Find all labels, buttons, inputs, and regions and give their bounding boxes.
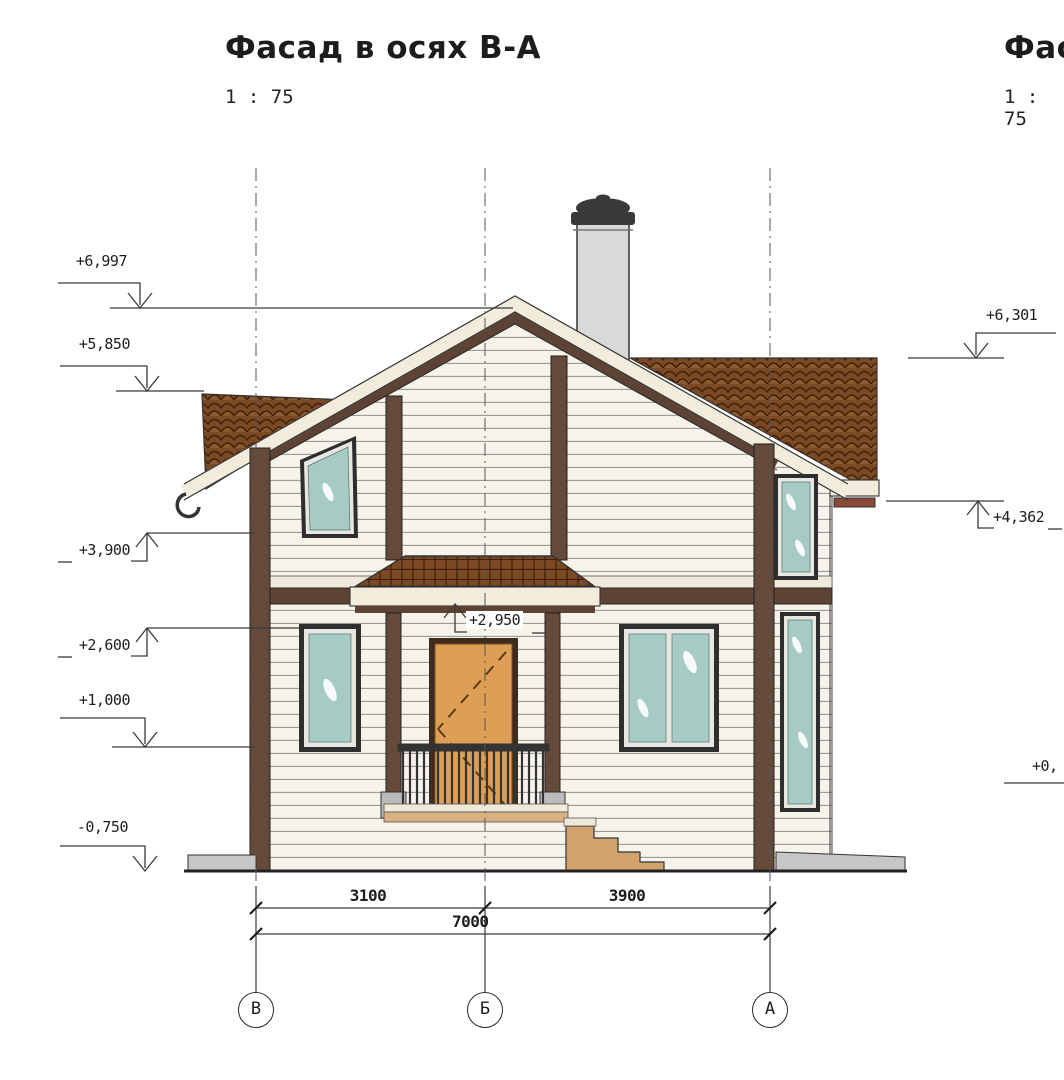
elevation-label-neg0750: -0,750 — [58, 818, 128, 836]
adjacent-view-title: Фас — [1004, 30, 1064, 66]
corner-post-axis-a — [754, 444, 774, 871]
gable-post-left — [386, 396, 402, 560]
facade-elevation-svg — [0, 0, 1064, 1080]
elevation-label-3900: +3,900 — [66, 541, 130, 559]
facade-drawing-sheet: Фасад в осях В-А 1 : 75 Фас 1 : 75 +6,99… — [0, 0, 1064, 1080]
porch-deck — [384, 804, 568, 822]
corner-post-axis-v — [250, 448, 270, 871]
elevation-label-2600: +2,600 — [66, 636, 130, 654]
elevation-label-6997: +6,997 — [57, 252, 127, 270]
elevation-label-canopy-2950: +2,950 — [466, 611, 523, 629]
axis-bubble-v: В — [238, 992, 274, 1028]
axis-bubble-a: А — [752, 992, 788, 1028]
window-ground-left — [299, 624, 361, 752]
main-view-title: Фасад в осях В-А — [225, 30, 541, 66]
axis-bubble-b: Б — [467, 992, 503, 1028]
dimension-total: 7000 — [452, 912, 489, 931]
main-view-scale: 1 : 75 — [225, 86, 294, 108]
gable-post-right — [551, 356, 567, 560]
window-ground-right-double — [619, 624, 719, 752]
plinth-left — [188, 855, 256, 871]
window-wing-lower — [780, 612, 820, 812]
window-wing-upper — [774, 474, 818, 580]
dimension-span-v-b: 3100 — [338, 886, 398, 905]
right-gutter — [834, 498, 875, 507]
dimension-span-b-a: 3900 — [597, 886, 657, 905]
adjacent-view-scale: 1 : 75 — [1004, 86, 1064, 130]
pavement-right — [776, 852, 905, 871]
elevation-label-1000: +1,000 — [60, 691, 130, 709]
elevation-label-4362: +4,362 — [993, 508, 1044, 526]
elevation-label-5850: +5,850 — [60, 335, 130, 353]
elevation-label-0-partial: +0, — [1032, 757, 1058, 775]
dimension-lines — [250, 886, 776, 992]
elevation-label-6301: +6,301 — [986, 306, 1037, 324]
